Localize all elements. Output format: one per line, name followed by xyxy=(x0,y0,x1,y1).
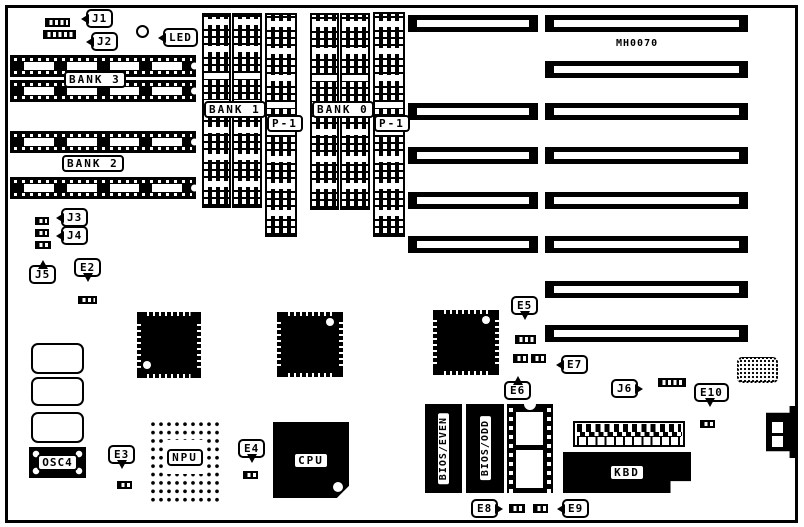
bank0-label: BANK 0 xyxy=(312,101,374,118)
jumper-j4 xyxy=(35,229,49,237)
jumper-j6 xyxy=(658,378,686,387)
jumper-e9 xyxy=(533,504,548,513)
jumper-j3 xyxy=(35,217,49,225)
jumper-label-j1: J1 xyxy=(86,9,113,28)
led-indicator xyxy=(136,25,149,38)
cpu-label: CPU xyxy=(293,452,329,469)
jumper-label-j2: J2 xyxy=(91,32,118,51)
jumper-label-j3: J3 xyxy=(61,208,88,227)
crystal-can xyxy=(31,377,84,406)
jumper-e3 xyxy=(117,481,132,489)
bios-even-label: BIOS/EVEN xyxy=(436,411,451,486)
kbd-label: KBD xyxy=(609,464,645,481)
power-header-cells xyxy=(577,436,681,445)
qfp-chip xyxy=(277,312,343,377)
isa-slot-8 xyxy=(545,325,748,342)
jumper-e5 xyxy=(515,335,536,344)
isa-slot-3 xyxy=(545,103,748,120)
p1-label: P-1 xyxy=(374,115,410,132)
jumper-e10 xyxy=(700,420,715,428)
osc4-oscillator: OSC4 xyxy=(29,447,86,478)
socket-window xyxy=(516,450,543,488)
jumper-e2 xyxy=(78,296,97,304)
isa-slot-1-ext xyxy=(408,15,538,32)
jumper-label-e8: E8 xyxy=(471,499,498,518)
keyboard-din-connector xyxy=(766,406,797,458)
bank1-label: BANK 1 xyxy=(204,101,266,118)
isa-slot-2 xyxy=(545,61,748,78)
jumper-e6 xyxy=(513,354,528,363)
qfp-chip xyxy=(137,312,201,378)
isa-slot-6-ext xyxy=(408,236,538,253)
isa-slot-4-ext xyxy=(408,147,538,164)
npu-socket: NPU xyxy=(147,418,223,502)
jumper-label-e10: E10 xyxy=(694,383,729,402)
jumper-label-e3: E3 xyxy=(108,445,135,464)
led-label: LED xyxy=(163,28,198,47)
bank2-socket-row xyxy=(10,177,196,199)
jumper-e4 xyxy=(243,471,258,479)
bank2-label: BANK 2 xyxy=(62,155,124,172)
jumper-label-e6: E6 xyxy=(504,381,531,400)
crystal-can xyxy=(31,343,84,374)
osc4-label: OSC4 xyxy=(37,454,78,471)
jumper-label-j4: J4 xyxy=(61,226,88,245)
isa-slot-5-ext xyxy=(408,192,538,209)
jumper-j5 xyxy=(35,241,51,249)
din-pin-block xyxy=(772,422,783,433)
jumper-label-e4: E4 xyxy=(238,439,265,458)
socket-notch xyxy=(524,404,536,410)
socket-window xyxy=(516,412,543,445)
power-header-pins xyxy=(577,424,681,432)
board-code: MH0070 xyxy=(616,38,658,49)
crystal-can xyxy=(31,412,84,443)
isa-slot-4 xyxy=(545,147,748,164)
isa-slot-1 xyxy=(545,15,748,32)
qfp-chip xyxy=(433,310,499,375)
jumper-j2 xyxy=(43,30,76,39)
pin1-dot-icon xyxy=(482,316,490,324)
bank3-label: BANK 3 xyxy=(64,71,126,88)
jumper-label-j5: J5 xyxy=(29,265,56,284)
bank2-socket-row xyxy=(10,131,196,153)
npu-socket-center: NPU xyxy=(163,440,207,474)
isa-slot-7 xyxy=(545,281,748,298)
jumper-label-e2: E2 xyxy=(74,258,101,277)
isa-slot-3-ext xyxy=(408,103,538,120)
npu-label: NPU xyxy=(167,449,203,466)
jumper-label-e5: E5 xyxy=(511,296,538,315)
jumper-j1 xyxy=(45,18,70,27)
jumper-label-e7: E7 xyxy=(561,355,588,374)
pin1-dot-icon xyxy=(326,318,334,326)
jumper-e7 xyxy=(531,354,546,363)
motherboard-diagram: BANK 3 BANK 2 BANK 1 P-1 BANK 0 P-1 MH00… xyxy=(0,0,804,527)
isa-slot-5 xyxy=(545,192,748,209)
cpu-chip: CPU xyxy=(273,422,349,498)
jumper-label-e9: E9 xyxy=(562,499,589,518)
bios-even-chip: BIOS/EVEN xyxy=(425,404,462,493)
empty-dip-socket xyxy=(507,404,553,493)
bios-odd-label: BIOS/ODD xyxy=(478,414,493,482)
isa-slot-6 xyxy=(545,236,748,253)
power-header xyxy=(573,421,685,447)
bios-odd-chip: BIOS/ODD xyxy=(466,404,504,493)
jumper-e8 xyxy=(509,504,525,513)
pin1-dot-icon xyxy=(333,482,343,492)
jumper-label-j6: J6 xyxy=(611,379,638,398)
p1-label: P-1 xyxy=(267,115,303,132)
speaker-component xyxy=(737,357,778,383)
pin1-dot-icon xyxy=(143,361,151,369)
din-pin-block xyxy=(772,436,783,447)
